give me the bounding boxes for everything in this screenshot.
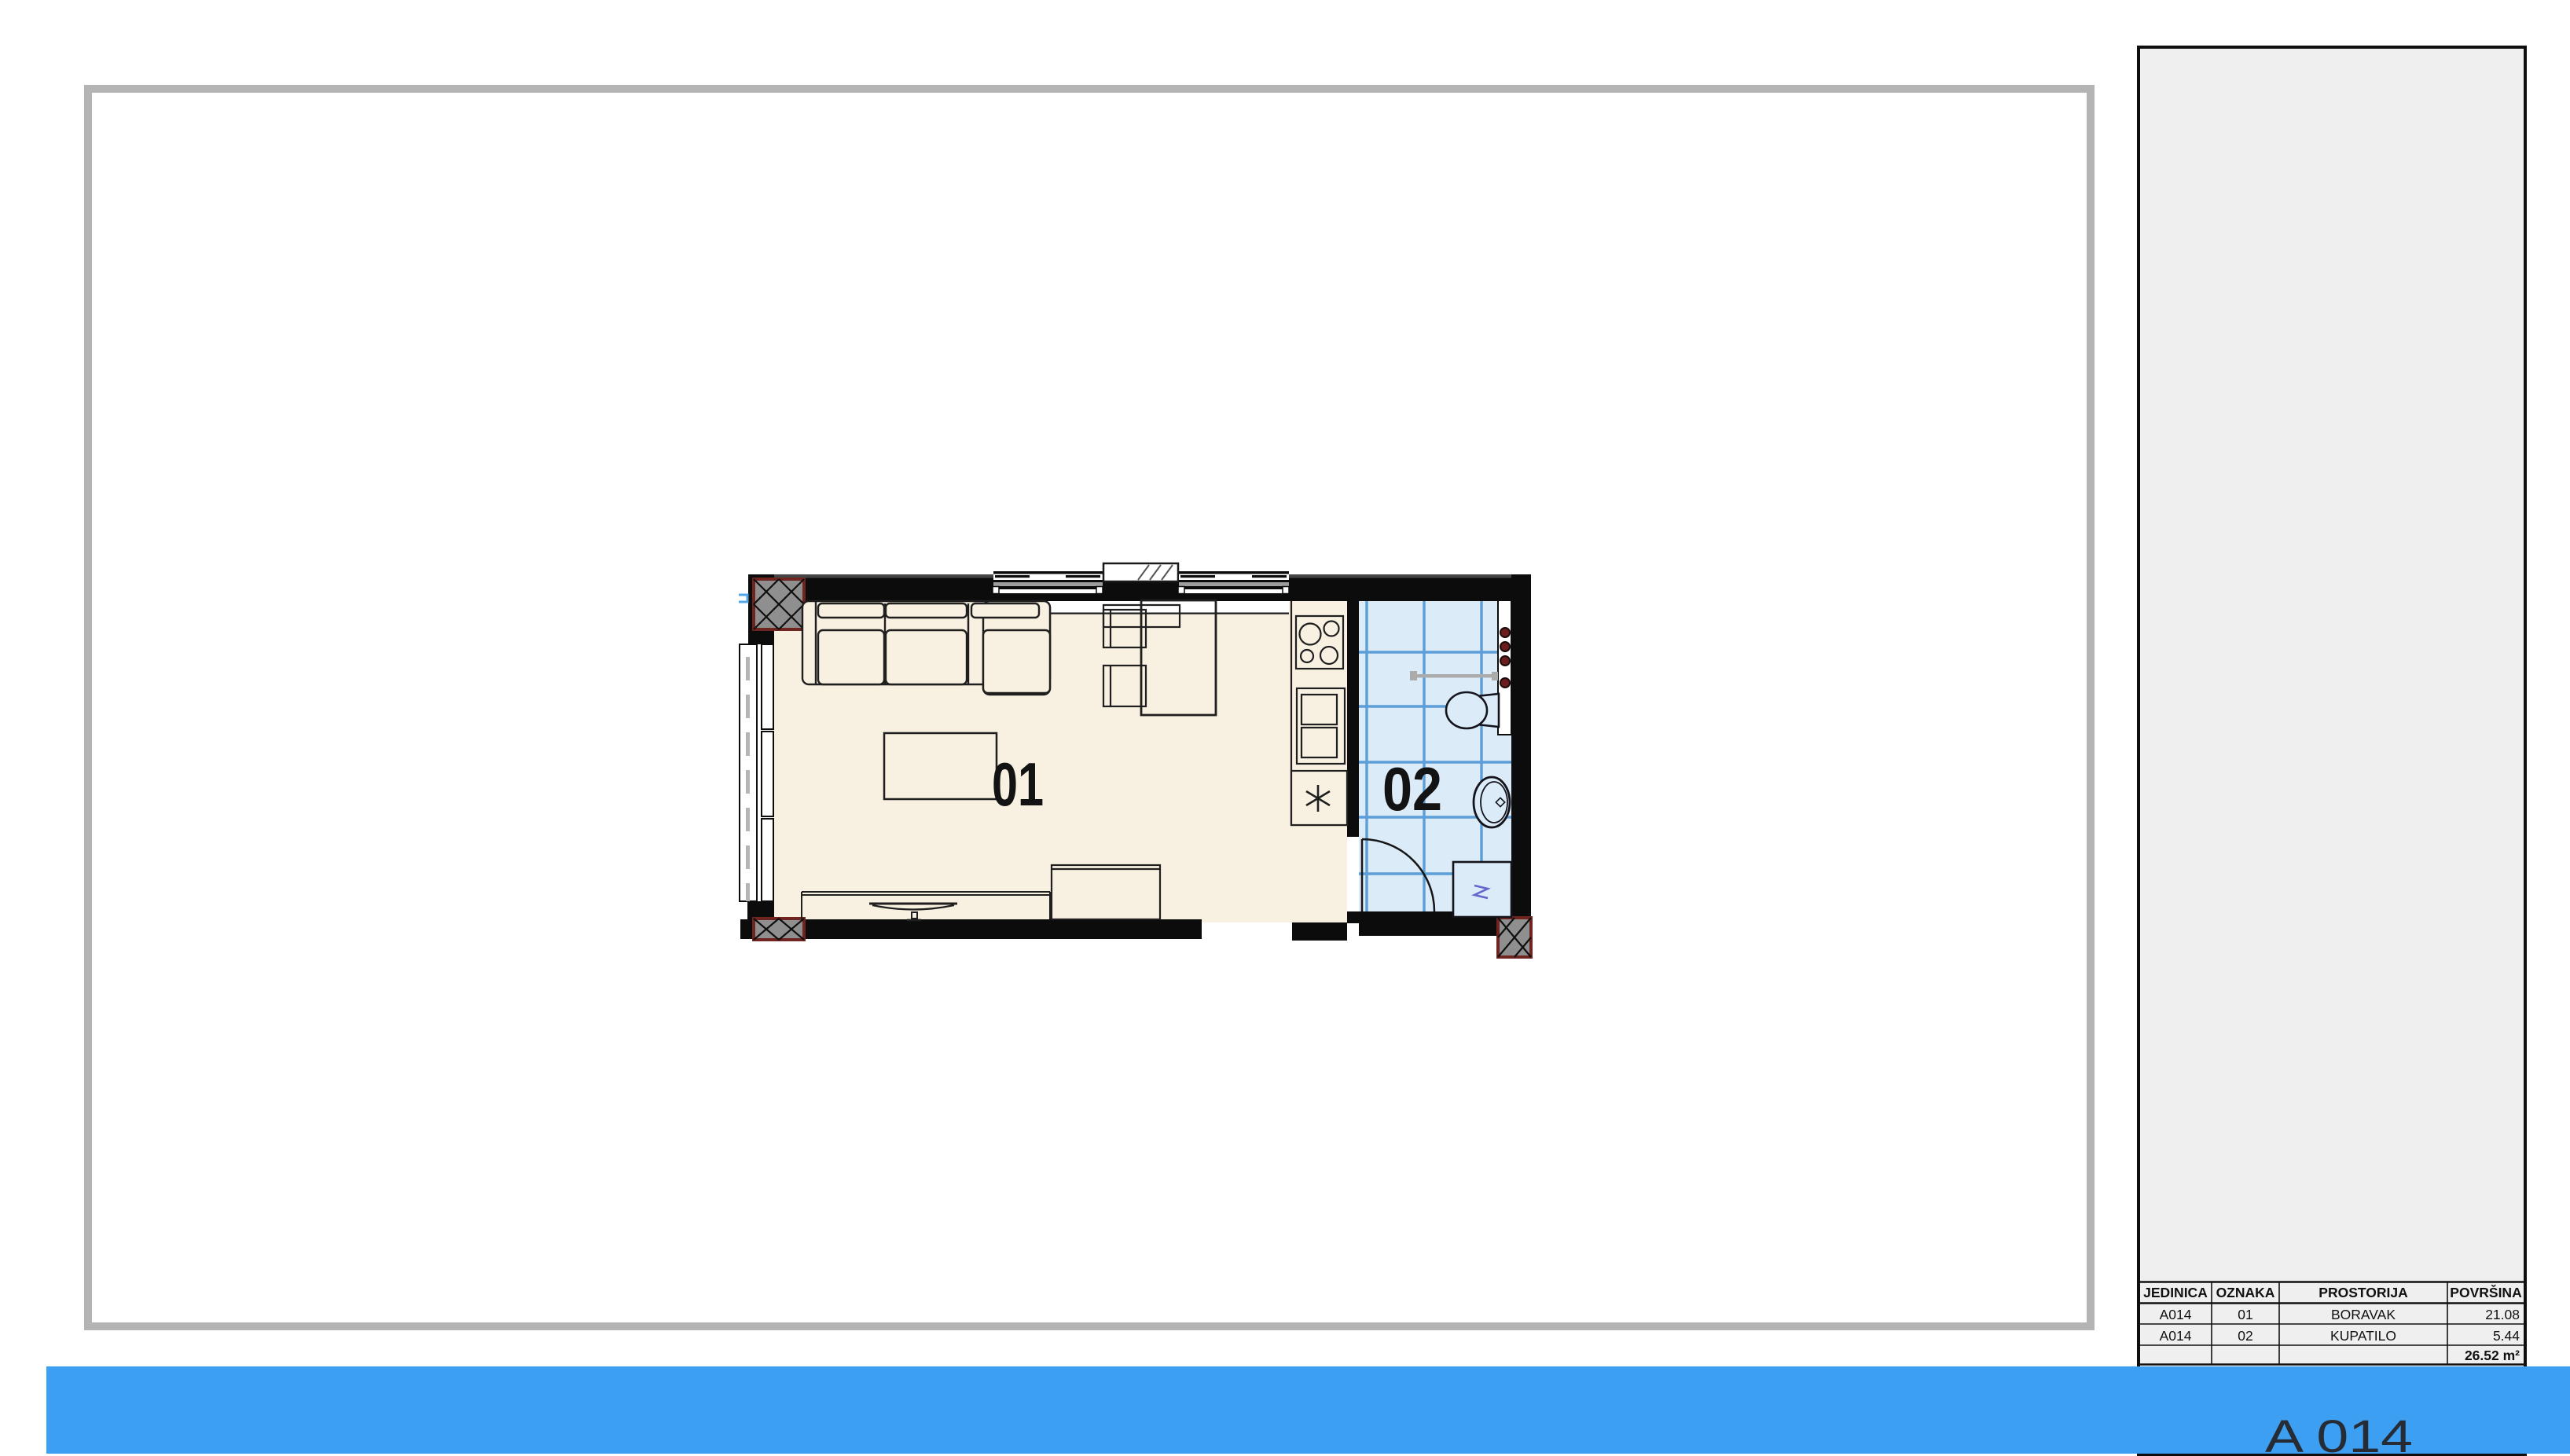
svg-text:A 014: A 014 <box>2265 1411 2413 1456</box>
